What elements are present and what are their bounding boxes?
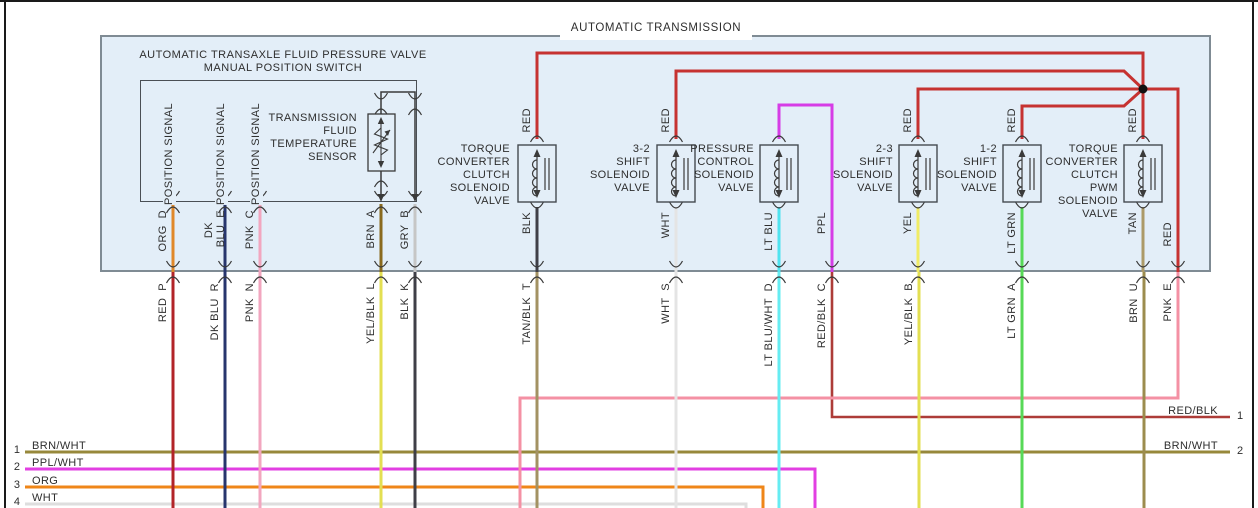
wire-pnk-e [520,272,1178,508]
wire-color-label: WHT [660,212,673,238]
solenoid-label-line: VALVE [833,182,893,195]
wire-color-label: RED P [157,283,170,322]
position-signal-label: POSITION SIGNAL [215,103,228,205]
wire-color-label: BLK K [399,283,412,320]
wire-color-label: BRN/WHT [32,440,86,452]
wire-color-label: YEL/BLK B [903,283,916,345]
wire-color-label: BRN U [1128,283,1141,323]
wire-color-label: PPL/WHT [32,457,84,469]
solenoid-label-3-2-shift: 3-2SHIFTSOLENOIDVALVE [590,143,650,195]
wire-number: 3 [8,479,20,491]
wire-color-label: RED [1162,222,1175,246]
wire-color-label: PNK C [244,210,257,249]
wire-color-label: LT GRN A [1006,283,1019,339]
solenoid-label-1-2-shift: 1-2SHIFTSOLENOIDVALVE [937,143,997,195]
wire-color-label: ORG D [157,210,170,252]
wire-color-label: PPL [816,212,829,234]
wire-color-label: BRN/WHT [1164,440,1218,452]
solenoid-label-line: PRESSURE [690,143,754,156]
solenoid-label-line: SOLENOID [690,169,754,182]
wire-color-label: LT BLU/WHT D [763,283,776,366]
panel-caption-line2: MANUAL POSITION SWITCH [133,62,433,75]
position-signal-label: POSITION SIGNAL [163,103,176,205]
solenoid-label-line: PWM [1046,182,1118,195]
solenoid-label-line: SOLENOID [1046,195,1118,208]
solenoid-label-line: CONVERTER [1046,156,1118,169]
wire-color-label: TAN [1127,212,1140,234]
wire-number: 4 [8,496,20,508]
wire-color-label: YEL [902,212,915,234]
solenoid-label-line: SHIFT [937,156,997,169]
wire-color-label: RED/BLK C [816,283,829,348]
wire-color-label: RED [1006,108,1019,132]
solenoid-label-line: VALVE [1046,208,1118,221]
solenoid-label-line: TORQUE [1046,143,1118,156]
solenoid-label-line: SOLENOID [833,169,893,182]
solenoid-label-line: CLUTCH [438,169,510,182]
wire-color-label: RED [660,108,673,132]
page-title: AUTOMATIC TRANSMISSION [560,18,752,40]
wire-color-label: WHT S [660,283,673,324]
solenoid-label-line: CONVERTER [438,156,510,169]
wire-color-label: LT GRN [1006,212,1019,254]
wire-number: 2 [1237,445,1243,457]
solenoid-label-line: SHIFT [833,156,893,169]
wire-color-label: DK BLU R [209,283,222,340]
wire-wht-4 [25,504,746,508]
solenoid-label-tcc: TORQUECONVERTERCLUTCHSOLENOIDVALVE [438,143,510,208]
wire-number: 1 [8,444,20,456]
wire-color-label: RED/BLK [1168,405,1218,417]
wire-color-label: RED [1127,108,1140,132]
wire-color-label: PNK E [1162,283,1175,321]
solenoid-label-line: 3-2 [590,143,650,156]
arrow-down-icon [378,194,385,202]
solenoid-label-line: SHIFT [590,156,650,169]
wire-red-feed-2-3 [918,89,1143,139]
wire-red-feed-tcc [537,53,1143,139]
wire-color-label: PNK N [244,283,257,322]
wire-color-label: BLK [521,212,534,234]
wire-color-label: WHT [32,492,58,504]
solenoid-label-line: SOLENOID [937,169,997,182]
wire-junction-dot [1139,85,1148,94]
wire-color-label: YEL/BLK L [365,283,378,344]
wire-color-label: GRY B [399,210,412,249]
wire-color-label: RED [521,108,534,132]
wire-color-label: RED [902,108,915,132]
solenoid-label-line: VALVE [937,182,997,195]
wiring-diagram-page: AUTOMATIC TRANSMISSION AUTOMATIC TRANSAX… [0,0,1258,508]
solenoid-label-line: SOLENOID [590,169,650,182]
solenoid-label-2-3-shift: 2-3SHIFTSOLENOIDVALVE [833,143,893,195]
solenoid-label-tcc-pwm: TORQUECONVERTERCLUTCHPWMSOLENOIDVALVE [1046,143,1118,221]
solenoid-label-line: SOLENOID [438,182,510,195]
wire-color-label: LT BLU [763,212,776,251]
wire-number: 1 [1237,410,1243,422]
wire-layer [0,0,1258,508]
wire-color-label: ORG [32,475,58,487]
solenoid-label-line: CONTROL [690,156,754,169]
wire-number: 2 [8,461,20,473]
solenoid-label-line: VALVE [438,195,510,208]
solenoid-label-line: TORQUE [438,143,510,156]
wire-color-label: BLU E [215,210,228,247]
solenoid-label-line: VALVE [590,182,650,195]
solenoid-label-line: CLUTCH [1046,169,1118,182]
panel-caption-line1: AUTOMATIC TRANSAXLE FLUID PRESSURE VALVE [133,49,433,62]
panel-caption: AUTOMATIC TRANSAXLE FLUID PRESSURE VALVE… [133,49,433,74]
solenoid-label-line: VALVE [690,182,754,195]
solenoid-label-line: 2-3 [833,143,893,156]
wire-color-label: BRN A [365,210,378,248]
solenoid-label-pressure-control: PRESSURECONTROLSOLENOIDVALVE [690,143,754,195]
solenoid-label-line: 1-2 [937,143,997,156]
wire-red-feed-1-2 [1022,89,1143,139]
arrow-down-icon [412,194,419,202]
wire-color-label: TAN/BLK T [521,283,534,345]
position-signal-label: POSITION SIGNAL [250,103,263,205]
